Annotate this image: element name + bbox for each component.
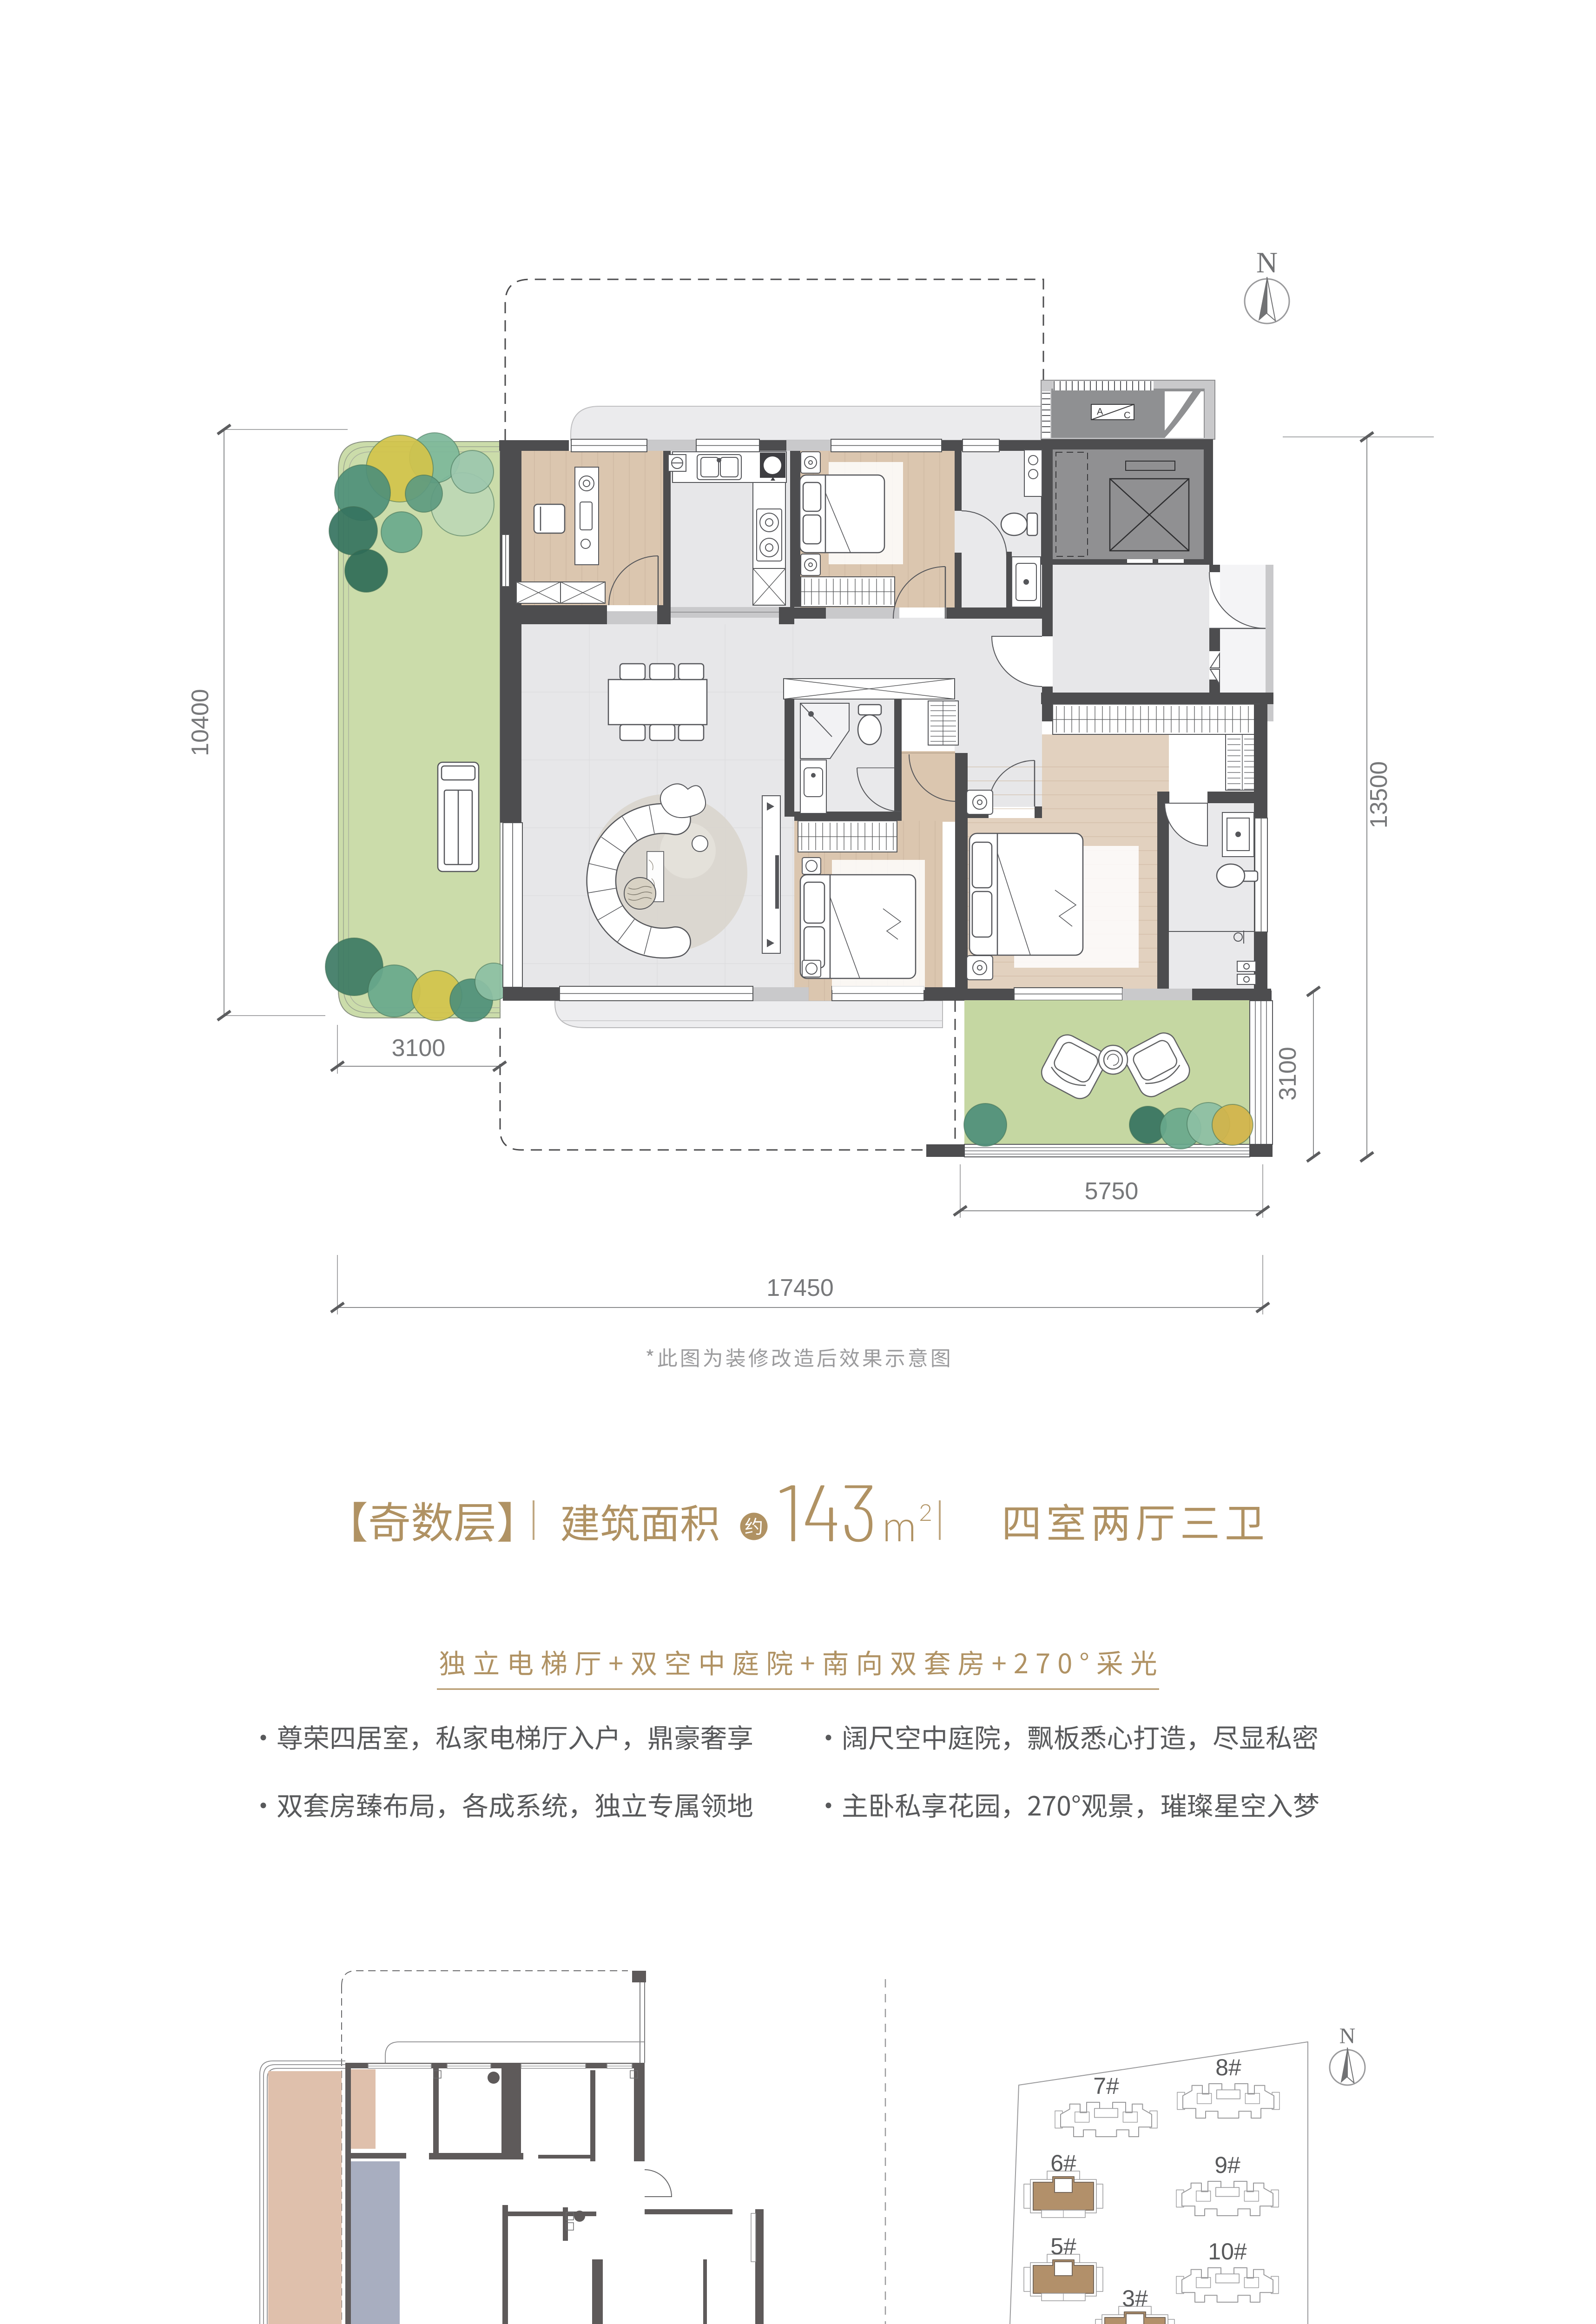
svg-text:A: A: [1097, 407, 1103, 417]
svg-text:13500: 13500: [1365, 761, 1392, 829]
svg-text:10400: 10400: [187, 689, 214, 756]
svg-text:N: N: [1256, 246, 1278, 279]
svg-text:9#: 9#: [1214, 2152, 1240, 2178]
svg-text:3100: 3100: [1274, 1047, 1301, 1101]
svg-text:17450: 17450: [766, 1274, 834, 1301]
svg-text:5750: 5750: [1085, 1178, 1139, 1205]
svg-text:6#: 6#: [1050, 2150, 1076, 2176]
svg-text:3100: 3100: [392, 1035, 446, 1062]
svg-text:8#: 8#: [1215, 2054, 1241, 2080]
svg-text:7#: 7#: [1093, 2073, 1119, 2099]
svg-text:3#: 3#: [1122, 2285, 1148, 2311]
svg-text:5#: 5#: [1050, 2233, 1076, 2259]
svg-text:C: C: [1124, 410, 1130, 421]
svg-text:N: N: [1339, 2024, 1356, 2048]
svg-text:10#: 10#: [1208, 2238, 1247, 2265]
